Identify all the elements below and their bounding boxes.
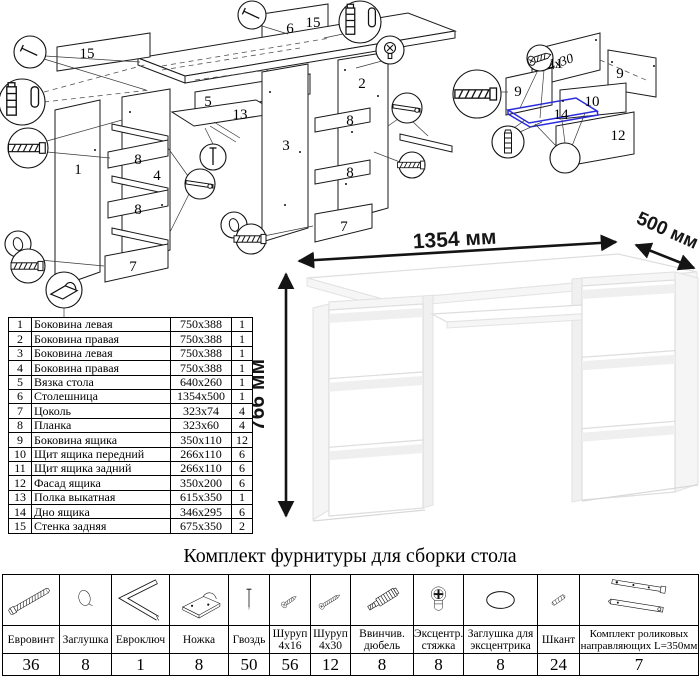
- parts-cell-num: 13: [9, 490, 32, 504]
- parts-cell-num: 3: [9, 346, 32, 360]
- parts-cell-num: 9: [9, 433, 32, 447]
- wood-dowel-icon: [538, 576, 579, 624]
- slides-icon-cell: [580, 575, 699, 626]
- cam-cover-icon-cell: [464, 575, 538, 626]
- hardware-item-qty: 8: [170, 654, 229, 676]
- screw-4x16-icon-cell: [270, 575, 311, 626]
- parts-cell-qty: 2: [232, 519, 253, 533]
- part-label: 9: [514, 84, 522, 100]
- part-label: 1: [74, 162, 82, 178]
- hardware-qty-row: 36818505612888247: [3, 654, 699, 676]
- screw-4x16-icon: [270, 576, 310, 624]
- cap-icon-cell: [60, 575, 112, 626]
- part-label: 8: [346, 113, 354, 129]
- euroscrew-icon: [398, 161, 425, 169]
- parts-cell-name: Боковина левая: [32, 318, 171, 332]
- parts-cell-name: Щит ящика задний: [32, 461, 171, 475]
- hardware-item-name: Гвоздь: [229, 626, 270, 654]
- parts-cell-num: 11: [9, 461, 32, 475]
- parts-cell-size: 750x388: [171, 332, 232, 346]
- hardware-item-name: Евровинт: [3, 626, 60, 654]
- parts-cell-size: 750x388: [171, 361, 232, 375]
- parts-cell-qty: 1: [232, 346, 253, 360]
- hardware-item-qty: 7: [580, 654, 699, 676]
- parts-cell-num: 5: [9, 375, 32, 389]
- parts-cell-qty: 1: [232, 332, 253, 346]
- part-label: 8: [134, 202, 142, 218]
- euroscrew-icon: [8, 143, 45, 154]
- screw-4x30-icon: [311, 576, 350, 624]
- part-label: 8: [134, 152, 142, 168]
- parts-cell-name: Боковина правая: [32, 332, 171, 346]
- parts-cell-size: 323x60: [171, 418, 232, 432]
- parts-row: 6Столешница1354x5001: [9, 389, 253, 403]
- foot-icon-cell: [170, 575, 229, 626]
- parts-cell-size: 266x110: [171, 461, 232, 475]
- assembly-instruction-sheet: 15 6 15 1 4 8 8 7 5 13 3 2 8 8 7: [0, 0, 700, 677]
- hardware-item-qty: 12: [311, 654, 351, 676]
- parts-cell-size: 675x350: [171, 519, 232, 533]
- hardware-item-qty: 8: [464, 654, 538, 676]
- part-label: 2: [358, 76, 366, 92]
- hardware-item-name: Шуруп 4x30: [311, 626, 351, 654]
- parts-cell-name: Полка выкатная: [32, 490, 171, 504]
- dowel-screw-icon: [351, 576, 413, 624]
- euroscrew-icon: [455, 88, 497, 100]
- hardware-icon-row: [3, 575, 699, 626]
- parts-cell-size: 350x110: [171, 433, 232, 447]
- parts-row: 11Щит ящика задний266x1106: [9, 461, 253, 475]
- parts-cell-name: Боковина левая: [32, 346, 171, 360]
- parts-row: 10Щит ящика передний266x1106: [9, 447, 253, 461]
- back-strip-left: [57, 33, 150, 71]
- part-label: 3: [282, 138, 290, 154]
- hexkey-icon-cell: [112, 575, 170, 626]
- parts-cell-qty: 6: [232, 476, 253, 490]
- parts-cell-name: Боковина правая: [32, 361, 171, 375]
- slides-icon: [580, 576, 698, 624]
- hardware-item-name: Заглушка для эксцентрика: [464, 626, 538, 654]
- parts-cell-qty: 1: [232, 361, 253, 375]
- euroscrew-icon: [11, 261, 43, 270]
- euroscrew-icon-cell: [3, 575, 60, 626]
- parts-cell-size: 615x350: [171, 490, 232, 504]
- part-label: 6: [286, 21, 294, 37]
- parts-row: 9Боковина ящика350x11012: [9, 433, 253, 447]
- parts-cell-name: Цоколь: [32, 404, 171, 418]
- hardware-item-name: Ножка: [170, 626, 229, 654]
- hardware-item-qty: 24: [538, 654, 580, 676]
- hardware-item-qty: 8: [351, 654, 414, 676]
- hexkey-icon: [112, 576, 169, 624]
- hardware-name-row: ЕвровинтЗаглушкаЕвроключНожкаГвоздьШуруп…: [3, 626, 699, 654]
- parts-cell-name: Боковина ящика: [32, 433, 171, 447]
- dowel-icon: [505, 130, 512, 153]
- dowel-screw-icon-cell: [351, 575, 414, 626]
- parts-row: 3Боковина левая750x3881: [9, 346, 253, 360]
- cam-cover-icon: [464, 576, 537, 624]
- parts-row: 12Фасад ящика350x2006: [9, 476, 253, 490]
- cam-lock-icon-cell: [414, 575, 464, 626]
- parts-row: 1Боковина левая750x3881: [9, 318, 253, 332]
- parts-cell-num: 8: [9, 418, 32, 432]
- wood-dowel-icon-cell: [538, 575, 580, 626]
- cam-lock-icon: [414, 576, 463, 624]
- parts-cell-size: 266x110: [171, 447, 232, 461]
- hardware-item-name: Ввинчив. дюбель: [351, 626, 414, 654]
- parts-cell-name: Щит ящика передний: [32, 447, 171, 461]
- hardware-item-name: Шуруп 4x16: [270, 626, 311, 654]
- hardware-item-qty: 1: [112, 654, 170, 676]
- parts-cell-name: Фасад ящика: [32, 476, 171, 490]
- empty-callout: [550, 143, 580, 173]
- parts-cell-name: Столешница: [32, 389, 171, 403]
- part-label: 10: [585, 94, 600, 110]
- part-label: 9: [616, 66, 624, 82]
- parts-cell-name: Вязка стола: [32, 375, 171, 389]
- euroscrew-icon: [3, 576, 59, 624]
- parts-cell-num: 7: [9, 404, 32, 418]
- parts-cell-num: 1: [9, 318, 32, 332]
- parts-cell-name: Планка: [32, 418, 171, 432]
- part-label: 12: [611, 128, 626, 144]
- cap-icon: [60, 576, 111, 624]
- part-label: 14: [554, 107, 570, 123]
- hardware-kit-title: Комплект фурнитуры для сборки стола: [0, 545, 700, 568]
- part-label: 7: [129, 259, 137, 275]
- screw-4x30-icon-cell: [311, 575, 351, 626]
- parts-cell-num: 4: [9, 361, 32, 375]
- part-label: 4: [153, 168, 161, 184]
- parts-cell-qty: 4: [232, 418, 253, 432]
- parts-cell-qty: 6: [232, 447, 253, 461]
- hardware-item-name: Евроключ: [112, 626, 170, 654]
- parts-table: 1Боковина левая750x38812Боковина правая7…: [8, 317, 253, 534]
- hardware-item-name: Шкант: [538, 626, 580, 654]
- hardware-item-qty: 8: [60, 654, 112, 676]
- part-label: 15: [306, 15, 321, 31]
- parts-cell-qty: 6: [232, 461, 253, 475]
- parts-cell-num: 2: [9, 332, 32, 346]
- parts-cell-size: 750x388: [171, 346, 232, 360]
- parts-cell-name: Дно ящика: [32, 505, 171, 519]
- parts-cell-name: Стенка задняя: [32, 519, 171, 533]
- nail-icon-cell: [229, 575, 270, 626]
- parts-cell-num: 10: [9, 447, 32, 461]
- slide-rail-right: [400, 134, 452, 152]
- parts-cell-size: 346x295: [171, 505, 232, 519]
- parts-row: 8Планка323x604: [9, 418, 253, 432]
- parts-row: 4Боковина правая750x3881: [9, 361, 253, 375]
- exploded-diagram-drawer: 4x30 11 9 9 10 14 12: [450, 0, 700, 205]
- hardware-item-qty: 56: [270, 654, 311, 676]
- hardware-item-qty: 8: [414, 654, 464, 676]
- part-label: 8: [346, 165, 354, 181]
- parts-cell-qty: 1: [232, 318, 253, 332]
- hardware-item-name: Эксцентр. стяжка: [414, 626, 464, 654]
- parts-row: 14Дно ящика346x2956: [9, 505, 253, 519]
- hardware-item-name: Комплект роликовых направляющих L=350мм: [580, 626, 699, 654]
- parts-cell-size: 750x388: [171, 318, 232, 332]
- hardware-item-qty: 50: [229, 654, 270, 676]
- hardware-item-qty: 36: [3, 654, 60, 676]
- parts-row: 15Стенка задняя675x3502: [9, 519, 253, 533]
- parts-cell-size: 323x74: [171, 404, 232, 418]
- parts-cell-size: 1354x500: [171, 389, 232, 403]
- parts-cell-qty: 12: [232, 433, 253, 447]
- part-label: 5: [204, 94, 212, 110]
- parts-cell-num: 12: [9, 476, 32, 490]
- hardware-item-name: Заглушка: [60, 626, 112, 654]
- drawer-side-left: [506, 68, 552, 115]
- foot-icon: [170, 576, 228, 624]
- hardware-kit-table: ЕвровинтЗаглушкаЕвроключНожкаГвоздьШуруп…: [2, 574, 699, 676]
- parts-cell-size: 350x200: [171, 476, 232, 490]
- parts-cell-qty: 4: [232, 404, 253, 418]
- parts-table-body: 1Боковина левая750x38812Боковина правая7…: [9, 318, 253, 534]
- parts-row: 5Вязка стола640x2601: [9, 375, 253, 389]
- part-label: 11: [549, 56, 563, 72]
- desk-render: [307, 254, 698, 521]
- parts-cell-num: 14: [9, 505, 32, 519]
- parts-row: 13Полка выкатная615x3501: [9, 490, 253, 504]
- parts-cell-qty: 1: [232, 490, 253, 504]
- desk-dimensions-figure: 1354 мм 500 мм 766 мм: [250, 210, 700, 540]
- parts-cell-size: 640x260: [171, 375, 232, 389]
- parts-cell-qty: 6: [232, 505, 253, 519]
- parts-cell-qty: 1: [232, 375, 253, 389]
- part-label: 13: [233, 107, 248, 123]
- parts-cell-qty: 1: [232, 389, 253, 403]
- parts-row: 2Боковина правая750x3881: [9, 332, 253, 346]
- parts-cell-num: 6: [9, 389, 32, 403]
- nail-icon: [229, 576, 269, 624]
- parts-row: 7Цоколь323x744: [9, 404, 253, 418]
- parts-cell-num: 15: [9, 519, 32, 533]
- part-label: 15: [80, 46, 95, 62]
